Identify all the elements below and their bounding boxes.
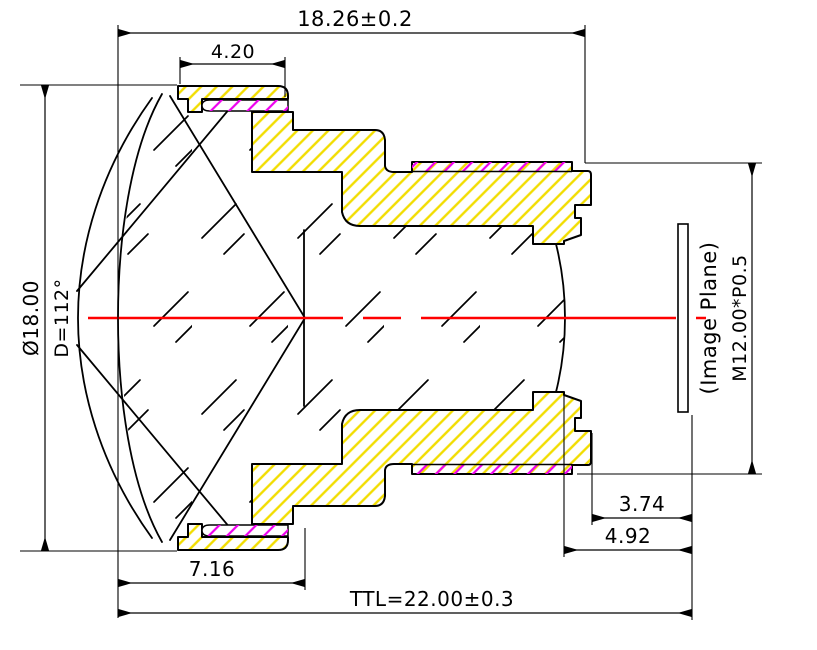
mount-thread-label: M12.00*P0.5 [729,254,751,381]
dim-outer-diameter-label: Ø18.00 [19,280,43,356]
lens-drawing-canvas: 18.26±0.2 4.20 Ø18.00 D=112° 3.74 4.92 7… [0,0,817,650]
thread-zone-lower [412,465,572,475]
lens-cross-section-drawing: 18.26±0.2 4.20 Ø18.00 D=112° 3.74 4.92 7… [0,0,817,650]
fov-diameter-label: D=112° [51,278,73,357]
dim-front-thickness-label: 7.16 [189,557,236,581]
dim-top-length-label: 18.26±0.2 [297,7,413,31]
dim-flange-focal-label: 4.92 [605,524,652,548]
dim-total-track-label: TTL=22.00±0.3 [349,587,514,611]
thread-zone-upper [412,162,572,172]
dim-cap-width-label: 4.20 [211,41,255,63]
dim-back-focal-label: 3.74 [619,492,666,516]
image-plane-glass [678,224,688,412]
image-plane-label: (Image Plane) [697,242,721,395]
